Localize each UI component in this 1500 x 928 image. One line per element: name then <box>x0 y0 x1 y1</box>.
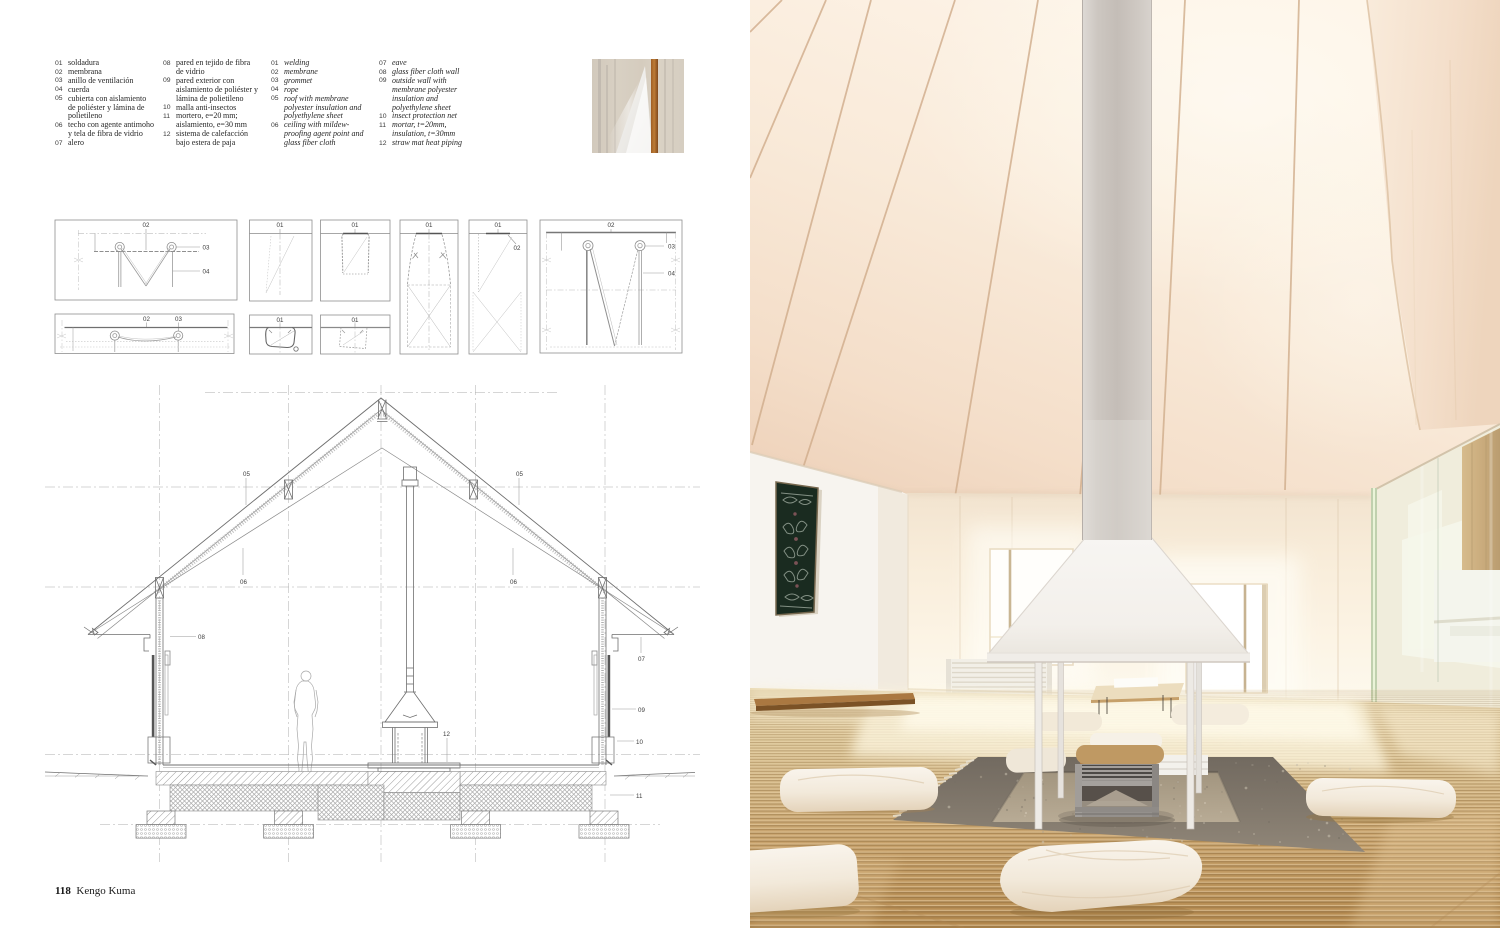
svg-text:10: 10 <box>636 739 643 746</box>
svg-text:01: 01 <box>426 222 433 229</box>
svg-text:03: 03 <box>203 245 210 252</box>
svg-text:06: 06 <box>510 579 517 586</box>
svg-text:12: 12 <box>443 731 450 738</box>
svg-text:07: 07 <box>638 656 645 663</box>
svg-text:08: 08 <box>198 634 205 641</box>
svg-text:01: 01 <box>495 222 502 229</box>
svg-text:02: 02 <box>143 222 150 229</box>
svg-text:02: 02 <box>608 222 615 229</box>
svg-text:01: 01 <box>352 317 359 324</box>
svg-text:03: 03 <box>175 316 182 323</box>
svg-text:01: 01 <box>277 317 284 324</box>
svg-text:09: 09 <box>638 707 645 714</box>
svg-text:11: 11 <box>636 793 643 800</box>
svg-text:04: 04 <box>203 269 210 276</box>
svg-text:03: 03 <box>668 244 675 251</box>
svg-text:04: 04 <box>668 271 675 278</box>
svg-text:02: 02 <box>514 245 521 252</box>
svg-text:05: 05 <box>243 471 250 478</box>
svg-text:01: 01 <box>352 222 359 229</box>
svg-text:02: 02 <box>143 316 150 323</box>
svg-text:05: 05 <box>516 471 523 478</box>
svg-text:01: 01 <box>277 222 284 229</box>
svg-text:06: 06 <box>240 579 247 586</box>
